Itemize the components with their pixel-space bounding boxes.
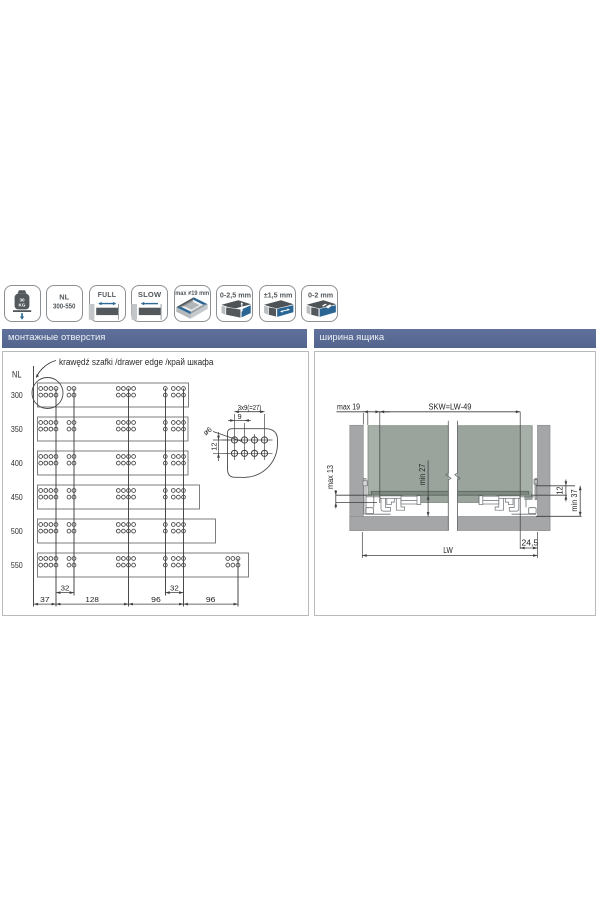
svg-text:NL: NL xyxy=(59,293,69,302)
svg-text:min 37: min 37 xyxy=(570,489,579,511)
svg-text:0-2 mm: 0-2 mm xyxy=(308,291,333,300)
svg-text:0-2,5 mm: 0-2,5 mm xyxy=(220,291,251,300)
svg-text:9: 9 xyxy=(237,412,241,421)
svg-text:NL: NL xyxy=(12,370,22,380)
svg-text:37: 37 xyxy=(40,595,50,604)
svg-text:max ≠19 mm: max ≠19 mm xyxy=(175,290,209,297)
svg-text:400: 400 xyxy=(11,458,23,468)
svg-text:96: 96 xyxy=(206,595,216,604)
svg-text:32: 32 xyxy=(61,583,70,592)
svg-text:LW: LW xyxy=(443,545,453,555)
svg-text:min 27: min 27 xyxy=(418,464,427,486)
svg-text:±1,5 mm: ±1,5 mm xyxy=(264,291,293,300)
svg-text:96: 96 xyxy=(151,595,161,604)
svg-text:krawędź szafki /drawer edge /к: krawędź szafki /drawer edge /край шкафа xyxy=(59,357,214,367)
svg-text:300-550: 300-550 xyxy=(53,302,76,311)
svg-text:450: 450 xyxy=(11,492,23,502)
svg-text:350: 350 xyxy=(11,424,23,434)
svg-text:30: 30 xyxy=(19,297,25,302)
svg-text:550: 550 xyxy=(11,560,23,570)
svg-text:SKW=LW-49: SKW=LW-49 xyxy=(429,402,472,411)
svg-text:12: 12 xyxy=(210,442,219,450)
svg-text:500: 500 xyxy=(11,526,23,536)
svg-text:ø6: ø6 xyxy=(201,425,213,437)
svg-text:FULL: FULL xyxy=(98,290,117,299)
svg-text:KG: KG xyxy=(19,303,26,308)
svg-text:300: 300 xyxy=(11,390,23,400)
svg-text:128: 128 xyxy=(85,595,99,604)
svg-text:32: 32 xyxy=(170,583,179,592)
svg-text:12: 12 xyxy=(556,487,565,495)
svg-text:24,5: 24,5 xyxy=(522,539,539,548)
svg-text:max 19: max 19 xyxy=(337,402,360,411)
svg-text:3x9(=27): 3x9(=27) xyxy=(238,403,262,412)
svg-text:SLOW: SLOW xyxy=(138,290,162,299)
svg-text:max 13: max 13 xyxy=(326,465,335,489)
